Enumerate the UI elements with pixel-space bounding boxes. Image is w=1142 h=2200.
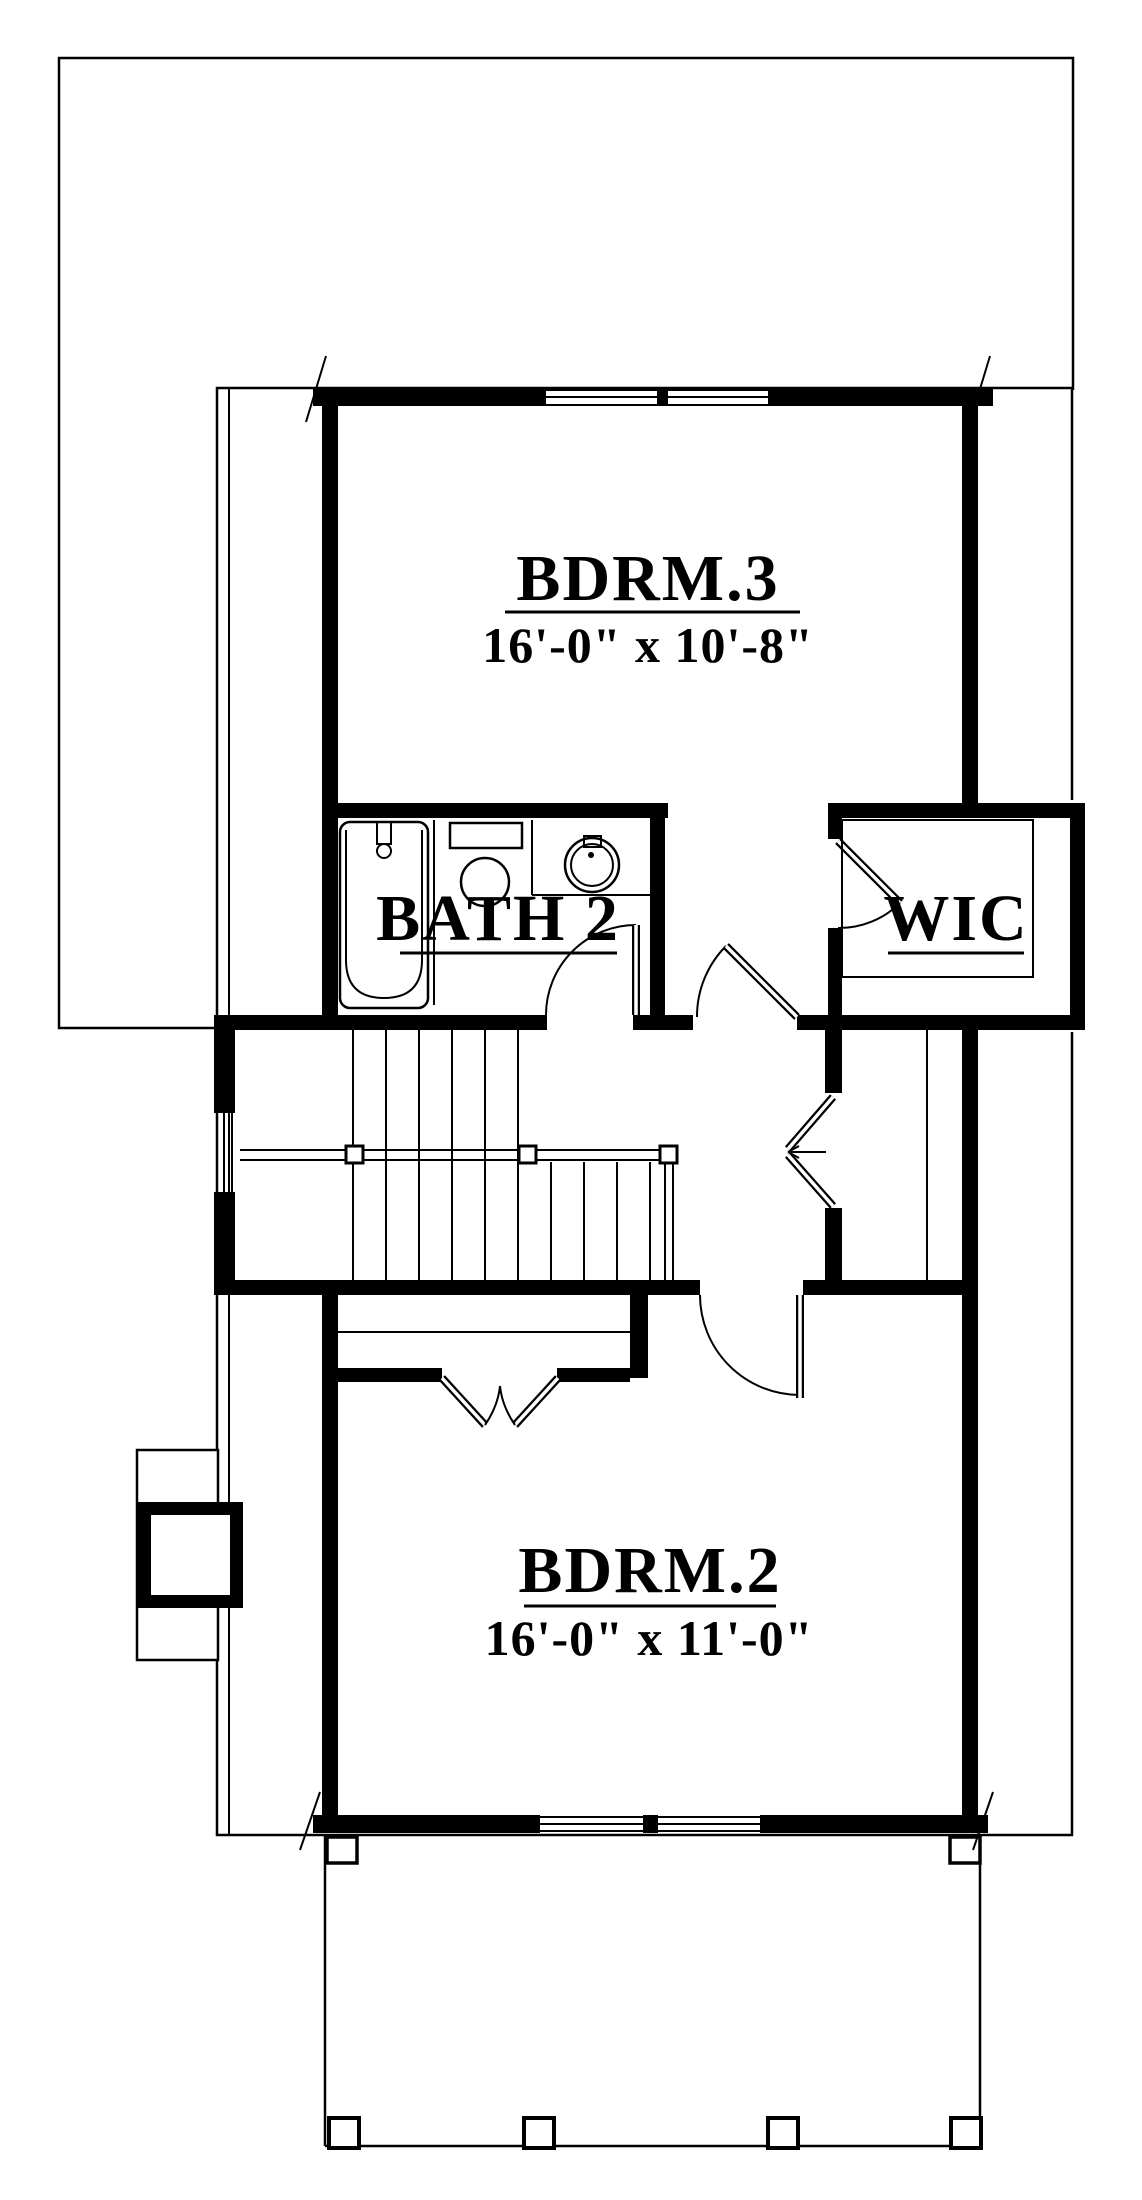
wall [557,1368,630,1382]
wall [322,1295,338,1815]
porch-column [768,2118,798,2148]
bdrm3-door [697,946,797,1017]
wall [214,1192,235,1295]
wall [828,803,1085,818]
wall [214,1015,235,1113]
bdrm2-label: BDRM.2 [518,1534,781,1607]
railing-newel-post [346,1146,363,1163]
floor-plan-drawing: BDRM.3 16'-0" x 10'-8" BATH 2 WIC BDRM.2… [0,0,1142,2200]
wic-label: WIC [883,882,1028,955]
wall [828,1015,1085,1030]
window [546,390,657,405]
bdrm2-dimensions: 16'-0" x 11'-0" [485,1610,814,1666]
railing-newel-post [660,1146,677,1163]
porch-column [327,1837,357,1863]
wall [643,1815,658,1833]
wall [633,1015,693,1030]
wall [803,1280,978,1295]
wall [338,1368,442,1382]
floor-plan-sheet: BDRM.3 16'-0" x 10'-8" BATH 2 WIC BDRM.2… [0,0,1142,2200]
wall [650,818,665,1015]
chimney [137,1450,243,1660]
room-labels: BDRM.3 16'-0" x 10'-8" BATH 2 WIC BDRM.2… [376,542,1029,1666]
wall [825,1030,842,1093]
wall [313,388,546,406]
bdrm3-dimensions: 16'-0" x 10'-8" [482,617,814,673]
wall [760,1815,988,1833]
chimney-flue-opening [151,1515,230,1595]
wall [313,1815,540,1833]
window [540,1817,643,1831]
bdrm3-label: BDRM.3 [516,542,779,615]
window [668,390,768,405]
wall [828,928,842,1016]
railing-newel-post [519,1146,536,1163]
wall [214,1280,700,1295]
hall-closet-bifold-doors [788,1097,833,1206]
wall [828,818,842,839]
window [658,1817,760,1831]
stairs [240,1030,677,1280]
porch [325,1835,981,2148]
bdrm2-door [700,1295,800,1398]
wall [962,1295,978,1815]
wall [214,1015,547,1030]
wall [825,1208,842,1280]
bath2-label: BATH 2 [376,882,620,955]
wall [630,1295,648,1378]
wall [322,406,338,1015]
stair-railing [240,1146,677,1280]
wall [338,803,668,818]
wall [657,388,668,406]
wall [768,388,993,406]
stair-treads-lower [551,1162,650,1280]
porch-column [524,2118,554,2148]
porch-column [951,2118,981,2148]
stair-treads-upper [353,1030,518,1280]
wall [962,406,978,803]
bdrm2-closet-double-doors [442,1378,558,1425]
wall [962,1030,978,1295]
porch-column [329,2118,359,2148]
wall [1070,803,1085,1030]
